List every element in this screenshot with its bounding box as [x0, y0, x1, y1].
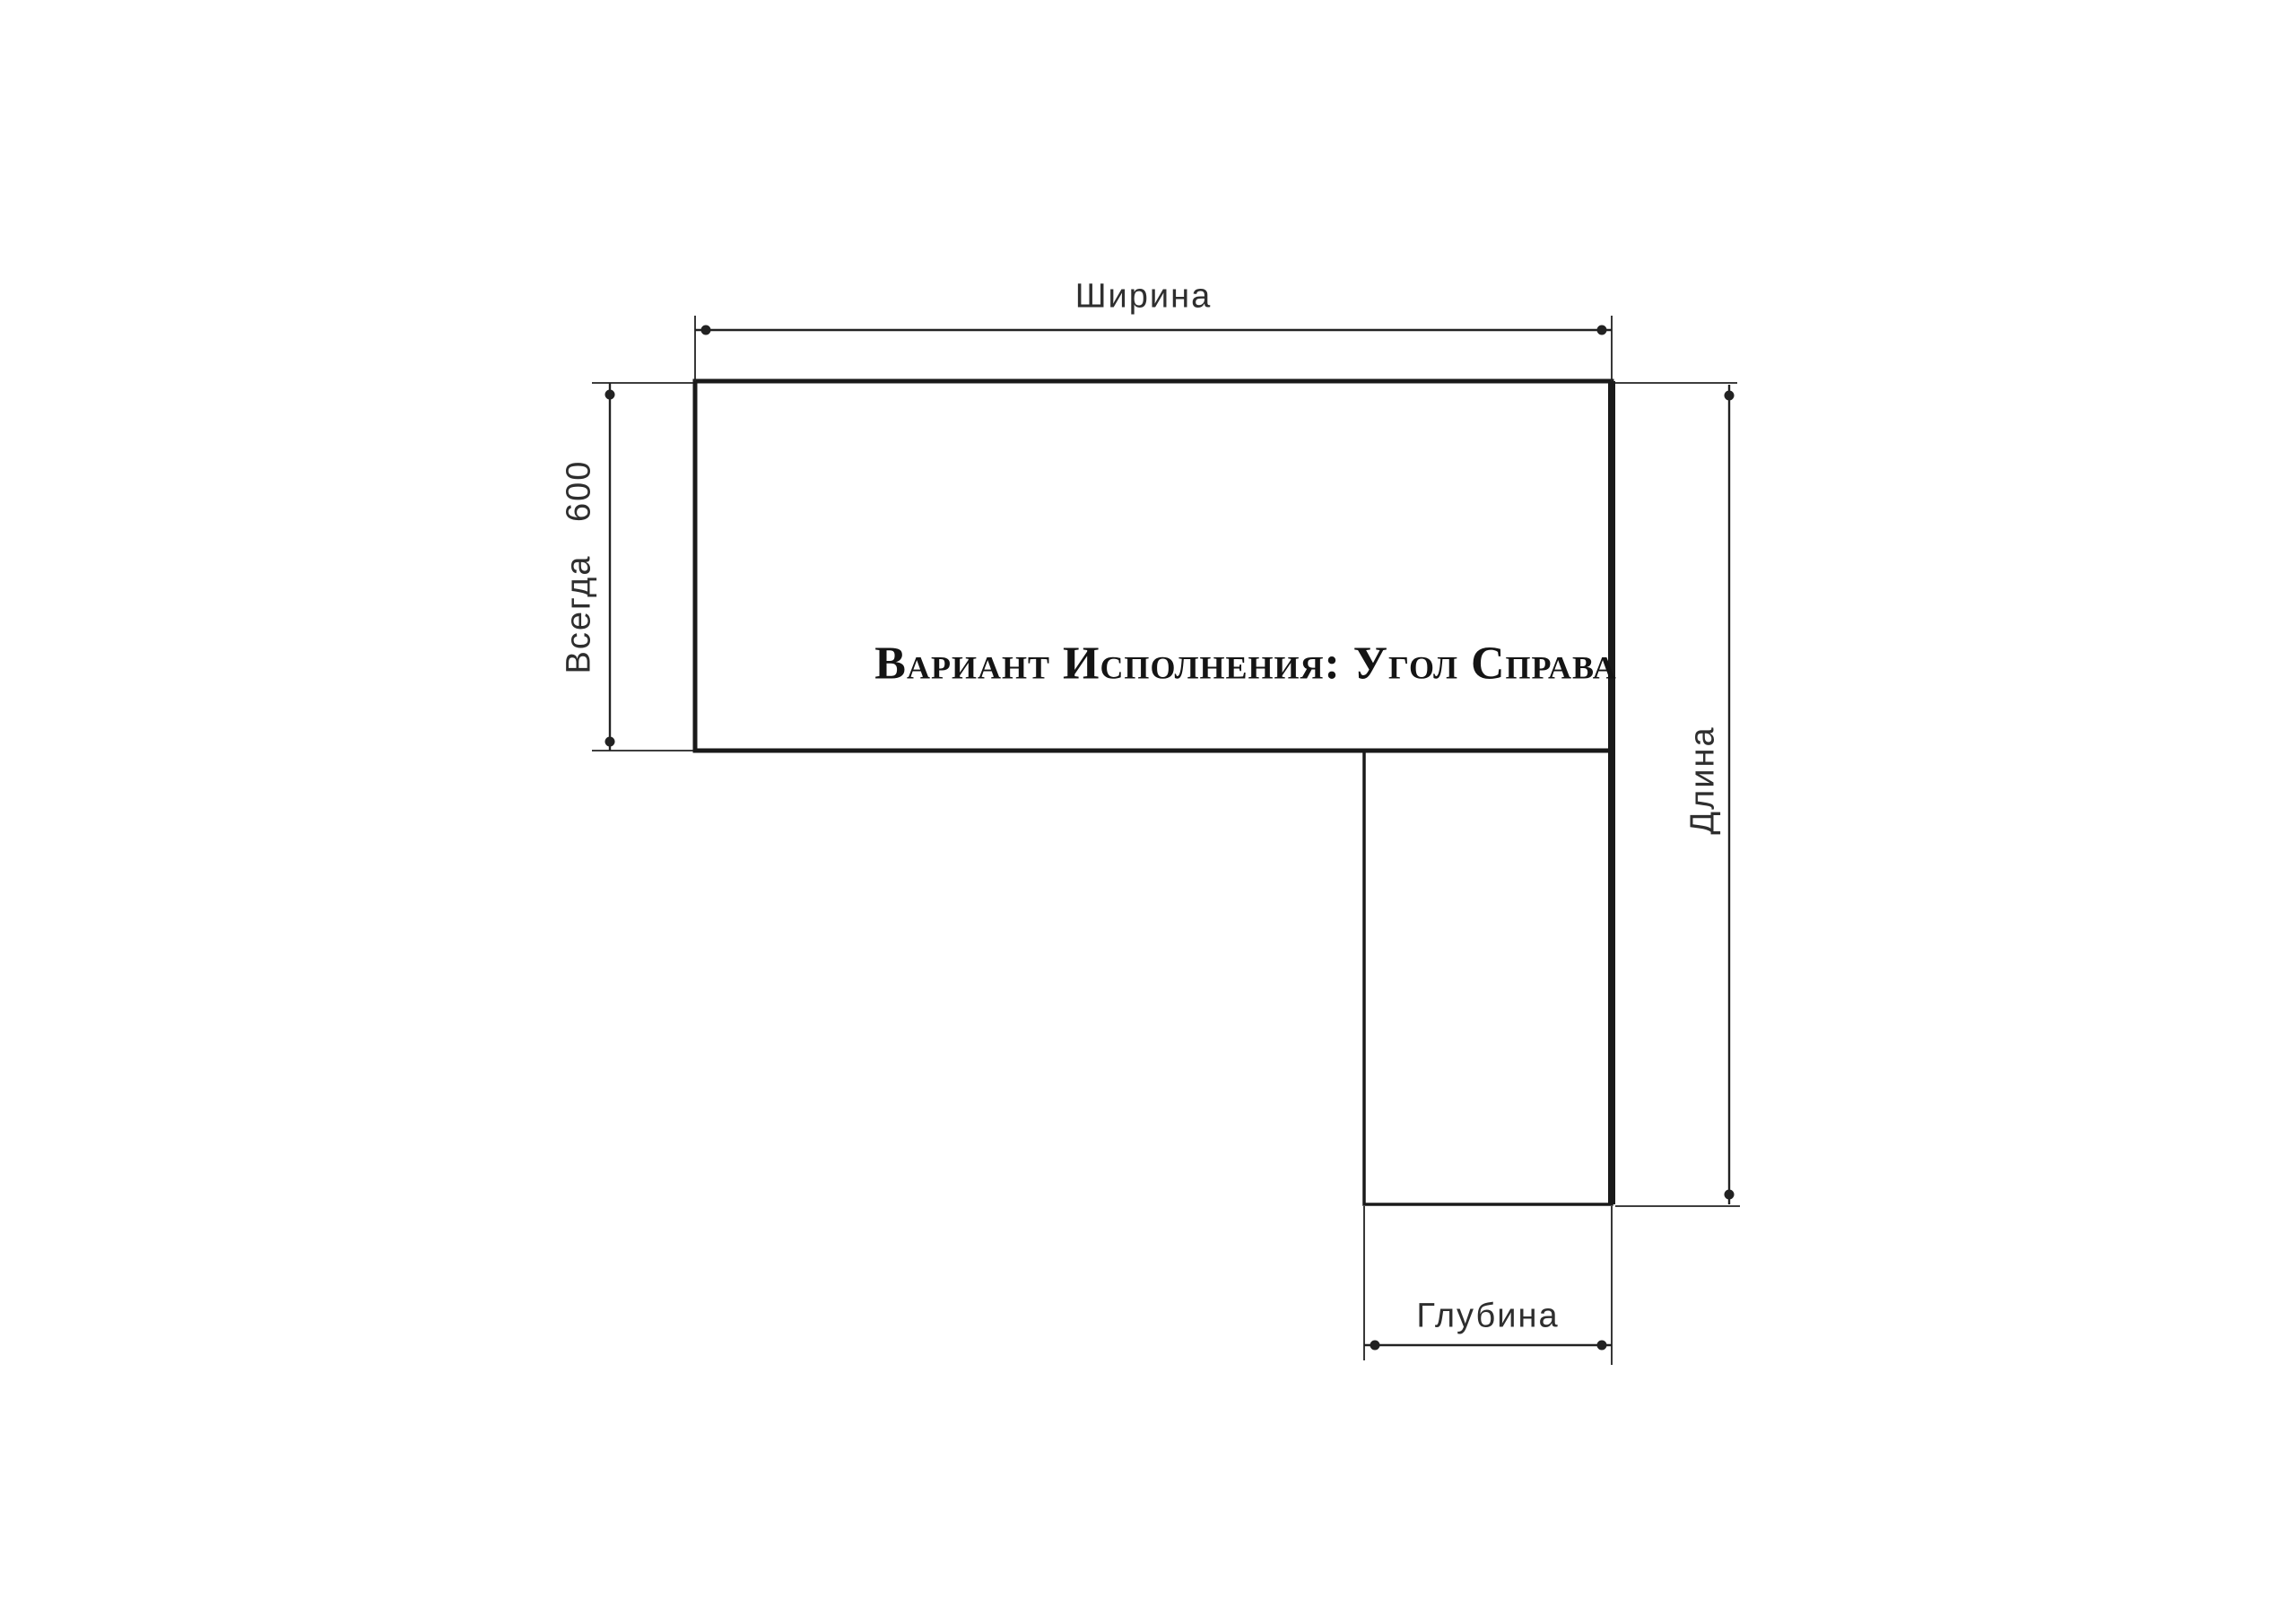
always-600-dimension [592, 383, 693, 751]
dimension-dot [1725, 391, 1735, 401]
l-shape-desk-diagram [0, 0, 2296, 1607]
depth-dimension [1364, 1206, 1612, 1365]
variant-title: Вариант Исполнения: Угол Справа [874, 638, 1616, 691]
dimension-dot [1370, 1341, 1380, 1351]
width-dimension [695, 316, 1612, 381]
dimension-dot [1597, 1341, 1607, 1351]
length-dimension-label: Длина [1684, 725, 1723, 834]
corner-return-rect [1364, 751, 1612, 1204]
dimension-dot [605, 737, 615, 747]
dimension-dot [1597, 326, 1607, 335]
main-top-rect [695, 381, 1612, 751]
shape-outline [695, 381, 1612, 1204]
dimension-dot [701, 326, 711, 335]
dimension-dot [605, 390, 615, 400]
always-600-dimension-label: Всегда 600 [561, 460, 599, 674]
depth-dimension-label: Глубина [1416, 1298, 1559, 1336]
dimension-dot [1725, 1190, 1735, 1200]
diagram-canvas: Ширина Всегда 600 Длина Глубина Вариант … [0, 0, 2296, 1607]
width-dimension-label: Ширина [1075, 278, 1213, 317]
